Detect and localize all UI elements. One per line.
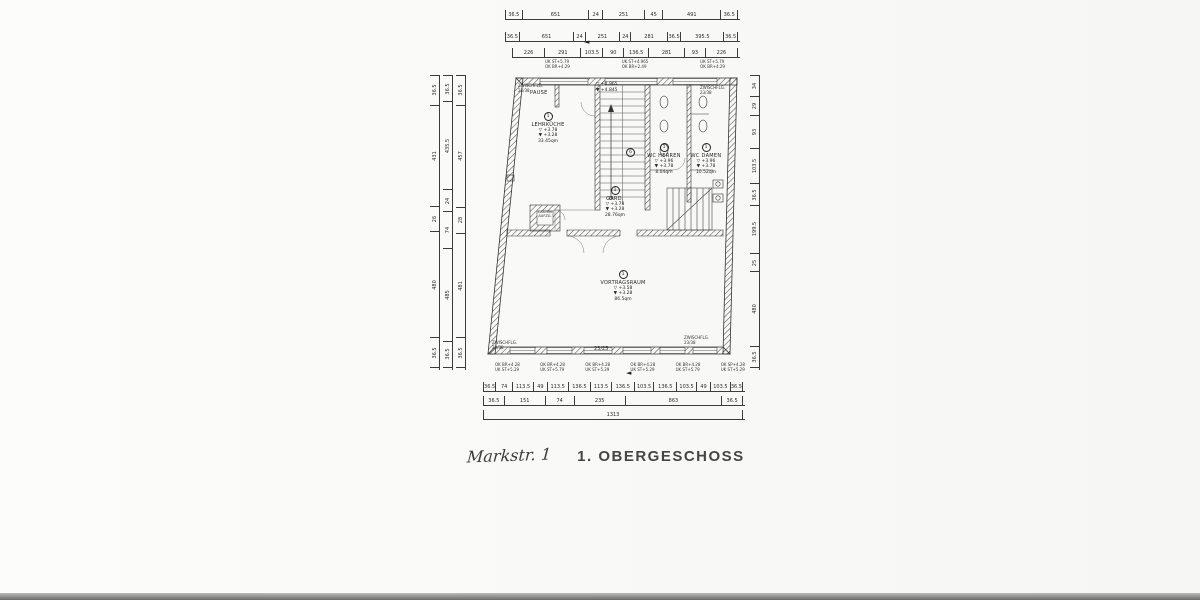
dim-label: 485 xyxy=(445,290,451,300)
dim-label: 36.5 xyxy=(445,349,451,360)
dim-segment: 226 xyxy=(705,48,737,57)
dim-segment: 36.5 xyxy=(720,10,737,19)
dim-label: 480 xyxy=(752,304,758,314)
dim-label: 36.5 xyxy=(432,85,438,96)
dim-label: 136.5 xyxy=(616,384,630,390)
dim-segment: 1313 xyxy=(483,410,742,419)
dim-label: 199.5 xyxy=(752,222,758,236)
dim-segment: 36.5 xyxy=(730,382,742,391)
dim-segment: 74 xyxy=(443,211,452,248)
dim-segment: 291 xyxy=(544,48,580,57)
dim-segment: 281 xyxy=(648,48,684,57)
dim-segment: 24 xyxy=(443,189,452,210)
floorplan-drawing xyxy=(455,60,775,380)
marker-arrow-icon: ◄ xyxy=(626,369,631,377)
dim-segment: 435.5 xyxy=(443,101,452,189)
dim-label: 24 xyxy=(576,34,582,40)
dim-segment: 457 xyxy=(456,105,465,207)
dim-chain-left-1: 36.54312648036.5 xyxy=(430,75,440,370)
dim-segment: 226 xyxy=(512,48,544,57)
dim-segment: 74 xyxy=(545,396,574,405)
dim-label: 36.5 xyxy=(507,34,518,40)
wall-notes-bottom: OK BR+4.28UK ST+5.29OK BR+4.28UK ST+5.79… xyxy=(495,362,745,372)
dim-label: 28 xyxy=(458,217,464,223)
dim-segment: 36.5 xyxy=(723,32,737,41)
dim-label: 226 xyxy=(717,50,727,56)
dim-segment: 651 xyxy=(522,10,589,19)
dim-label: 36.5 xyxy=(724,12,735,18)
corner-label-top-right: ZWISCHFLG. 23/38 xyxy=(700,85,725,95)
dim-label: 36.5 xyxy=(445,83,451,94)
dim-segment: 103.5 xyxy=(710,382,730,391)
wall-level-note: UK ST+5.79OK BR+4.29 xyxy=(700,59,725,69)
dim-end-tick xyxy=(742,382,745,391)
dim-label: 226 xyxy=(524,50,534,56)
dim-end-tick xyxy=(742,410,745,419)
dim-segment: 25 xyxy=(750,253,759,271)
dim-label: 74 xyxy=(557,398,563,404)
dim-label: 281 xyxy=(644,34,654,40)
dim-label: 1313 xyxy=(607,412,620,418)
dim-label: 136.5 xyxy=(572,384,586,390)
dim-segment: 113.5 xyxy=(547,382,568,391)
dim-label: 480 xyxy=(432,280,438,290)
wall-level-note: OK BR+4.28UK ST+5.79 xyxy=(540,362,565,372)
dim-segment: 36.5 xyxy=(430,75,439,105)
dim-segment: 395.5 xyxy=(680,32,723,41)
stairwell-levels: ▽ +4.965 ▼ +4.845 xyxy=(596,82,618,93)
corner-label-bottom-left: ZWISCHFLG. 23/38 xyxy=(492,340,517,350)
dim-label: 36.5 xyxy=(668,34,679,40)
dim-label: 103.5 xyxy=(679,384,693,390)
dim-label: 36.5 xyxy=(488,398,499,404)
dim-segment: 93 xyxy=(750,115,759,148)
dim-label: 103.5 xyxy=(637,384,651,390)
dim-segment: 251 xyxy=(602,10,644,19)
dim-label: 251 xyxy=(619,12,629,18)
dim-segment: 103.5 xyxy=(750,148,759,183)
mid-wall-dimension: 23/25 xyxy=(594,346,608,352)
dim-segment: 431 xyxy=(430,105,439,206)
dim-segment: 480 xyxy=(750,271,759,346)
room-number-badge: 1 xyxy=(619,270,628,279)
dim-segment: 36.5 xyxy=(456,75,465,105)
dim-label: 25 xyxy=(752,259,758,265)
wall-level-note: UK ST+4.965OK BR+2.49 xyxy=(622,59,649,69)
dim-segment: 24 xyxy=(588,10,602,19)
corner-label-bottom-right: ZWISCHFLG. 23/38 xyxy=(684,335,709,345)
dim-label: 113.5 xyxy=(594,384,608,390)
dim-label: 45 xyxy=(650,12,656,18)
dim-label: 251 xyxy=(598,34,608,40)
dim-segment: 36.5 xyxy=(505,32,519,41)
dim-segment: 49 xyxy=(533,382,547,391)
scanned-floorplan-page: 36.5651242514549136.5 36.565124251242813… xyxy=(0,0,1200,600)
dim-segment: 36.5 xyxy=(505,10,522,19)
room-number-badge: 1 xyxy=(544,112,553,121)
dim-segment: 36.5 xyxy=(721,396,742,405)
wall-notes-top: UK ST+5.79OK BR+4.29UK ST+4.965OK BR+2.4… xyxy=(545,59,725,69)
dim-label: 24 xyxy=(593,12,599,18)
dim-label: 113.5 xyxy=(551,384,565,390)
dim-chain-bottom-2: 36.51517423586336.5 xyxy=(483,396,745,406)
dim-label: 29 xyxy=(752,102,758,108)
dim-label: 36.5 xyxy=(508,12,519,18)
dim-label: 90 xyxy=(610,50,616,56)
wall-level-note: OK BR+4.28UK ST+5.29 xyxy=(630,362,655,372)
dim-segment: 36.5 xyxy=(456,337,465,367)
dim-label: 136.5 xyxy=(629,50,643,56)
dim-segment: 863 xyxy=(625,396,722,405)
dim-segment: 651 xyxy=(519,32,574,41)
dim-label: 103.5 xyxy=(713,384,727,390)
room-label-lastenaufzug: LASTEN AUFZG. xyxy=(531,210,559,218)
dim-segment: 103.5 xyxy=(634,382,654,391)
dim-label: 24 xyxy=(445,197,451,203)
dim-segment: 251 xyxy=(585,32,619,41)
dim-segment: 136.5 xyxy=(623,48,648,57)
dim-label: 49 xyxy=(537,384,543,390)
dim-label: 26 xyxy=(432,216,438,222)
dim-end-tick xyxy=(737,48,740,57)
stairwell-number: 6 xyxy=(626,148,635,158)
title-block: Markstr. 1 1. OBERGESCHOSS xyxy=(467,446,745,465)
dim-chain-top-3: 226291103.590136.528193226 xyxy=(512,48,740,58)
dim-segment: 485 xyxy=(443,248,452,341)
dim-label: 103.5 xyxy=(585,50,599,56)
dim-label: 36.5 xyxy=(752,189,758,200)
dim-chain-right: 342993103.536.5199.52548036.5 xyxy=(750,75,760,370)
dim-segment: 26 xyxy=(430,206,439,231)
room-label-gard: 1 GARD. ▽ +3.78 ▼ +3.28 28.76qm xyxy=(592,186,638,219)
dim-label: 481 xyxy=(458,281,464,291)
dim-segment: 36.5 xyxy=(750,183,759,204)
dim-label: 36.5 xyxy=(432,347,438,358)
dim-end-tick xyxy=(742,396,745,405)
room-number-badge: 1 xyxy=(702,143,711,152)
dim-end-tick xyxy=(737,10,740,19)
dim-label: 36.5 xyxy=(731,384,742,390)
dim-segment: 235 xyxy=(574,396,625,405)
dim-end-tick xyxy=(737,32,740,41)
dim-label: 36.5 xyxy=(484,384,495,390)
wall-level-note: OK BR+4.28UK ST+5.29 xyxy=(585,362,610,372)
dim-segment: 36.5 xyxy=(443,341,452,367)
floor-title-stamp: 1. OBERGESCHOSS xyxy=(577,448,745,465)
dim-segment: 480 xyxy=(430,231,439,337)
dim-label: 93 xyxy=(752,129,758,135)
room-number-badge: 6 xyxy=(626,148,635,157)
dim-label: 151 xyxy=(520,398,530,404)
dim-segment: 36.5 xyxy=(443,75,452,101)
dim-label: 36.5 xyxy=(752,351,758,362)
wall-level-note: OK BR+4.28UK ST+5.79 xyxy=(676,362,701,372)
dim-segment: 36.5 xyxy=(483,396,504,405)
dim-segment: 36.5 xyxy=(667,32,681,41)
dim-segment: 24 xyxy=(619,32,630,41)
dim-segment: 113.5 xyxy=(590,382,611,391)
dim-label: 651 xyxy=(551,12,561,18)
dim-label: 651 xyxy=(542,34,552,40)
dim-segment: 36.5 xyxy=(430,337,439,367)
dim-chain-bottom-total: 1313 xyxy=(483,410,745,420)
dim-segment: 481 xyxy=(456,233,465,338)
corner-label-top-left: ZWISCHFLG. 23/38 xyxy=(518,83,543,93)
dim-label: 235 xyxy=(595,398,605,404)
handwritten-address: Markstr. 1 xyxy=(466,445,551,467)
dim-label: 93 xyxy=(692,50,698,56)
dim-segment: 136.5 xyxy=(653,382,676,391)
dim-label: 36.5 xyxy=(458,347,464,358)
scan-bottom-edge xyxy=(0,593,1200,600)
dim-segment: 199.5 xyxy=(750,205,759,254)
dim-segment: 93 xyxy=(684,48,705,57)
wall-level-note: OK SP+4.28UK ST+5.29 xyxy=(721,362,745,372)
dim-segment: 49 xyxy=(696,382,710,391)
dim-segment: 74 xyxy=(495,382,512,391)
dim-label: 74 xyxy=(445,227,451,233)
dim-label: 491 xyxy=(687,12,697,18)
dim-segment: 103.5 xyxy=(676,382,696,391)
dim-end-tick xyxy=(750,367,759,370)
dim-chain-left-2: 36.5435.5247448536.5 xyxy=(443,75,453,370)
dim-label: 36.5 xyxy=(458,85,464,96)
dim-segment: 113.5 xyxy=(512,382,533,391)
dim-segment: 34 xyxy=(750,75,759,96)
dim-segment: 36.5 xyxy=(750,346,759,367)
dim-label: 435.5 xyxy=(445,139,451,153)
dim-segment: 29 xyxy=(750,96,759,115)
dim-chain-top-1: 36.5651242514549136.5 xyxy=(505,10,740,20)
dim-segment: 136.5 xyxy=(568,382,591,391)
dim-label: 24 xyxy=(622,34,628,40)
dim-end-tick xyxy=(430,367,439,370)
dim-chain-top-2: 36.5651242512428136.5395.536.5 xyxy=(505,32,740,42)
dim-segment: 491 xyxy=(662,10,720,19)
dim-label: 34 xyxy=(752,83,758,89)
dim-segment: 45 xyxy=(644,10,662,19)
dim-chain-bottom-1: 36.574113.549113.5136.5113.5136.5103.513… xyxy=(483,382,745,392)
dim-segment: 28 xyxy=(456,207,465,233)
dim-segment: 281 xyxy=(630,32,666,41)
room-label-vortragsraum: 1 VORTRAGSRAUM ▽ +3.58 ▼ +3.28 86.5qm xyxy=(590,270,656,303)
marker-arrow-icon: ◄ xyxy=(584,38,589,46)
dim-label: 113.5 xyxy=(516,384,530,390)
dim-segment: 136.5 xyxy=(611,382,634,391)
dim-end-tick xyxy=(443,367,452,370)
dim-label: 36.5 xyxy=(727,398,738,404)
dim-segment: 103.5 xyxy=(580,48,602,57)
dim-label: 36.5 xyxy=(725,34,736,40)
dim-segment: 151 xyxy=(504,396,545,405)
wall-level-note: UK ST+5.79OK BR+4.29 xyxy=(545,59,570,69)
dim-label: 863 xyxy=(669,398,679,404)
dim-label: 457 xyxy=(458,151,464,161)
dim-label: 291 xyxy=(558,50,568,56)
dim-segment: 90 xyxy=(602,48,623,57)
dim-label: 74 xyxy=(501,384,507,390)
dim-label: 136.5 xyxy=(658,384,672,390)
dim-label: 431 xyxy=(432,151,438,161)
room-number-badge: 1 xyxy=(660,143,669,152)
dim-label: 281 xyxy=(662,50,672,56)
wall-level-note: OK BR+4.28UK ST+5.29 xyxy=(495,362,520,372)
room-number-badge: 1 xyxy=(611,186,620,195)
room-label-wc-herren: 1 WC HERREN ▽ +3.96 ▼ +3.78 8.04qm xyxy=(646,143,682,176)
room-label-wc-damen: 1 WC DAMEN ▽ +3.96 ▼ +3.78 10.52qm xyxy=(688,143,724,176)
dim-label: 49 xyxy=(700,384,706,390)
room-label-lehrkueche: 1 LEHRKÜCHE ▽ +3.78 ▼ +3.28 33.45qm xyxy=(524,112,572,145)
dim-segment: 36.5 xyxy=(483,382,495,391)
dim-chain-left-3: 36.54572848136.5 xyxy=(456,75,466,370)
dim-end-tick xyxy=(456,367,465,370)
dim-label: 103.5 xyxy=(752,159,758,173)
dim-label: 395.5 xyxy=(695,34,709,40)
